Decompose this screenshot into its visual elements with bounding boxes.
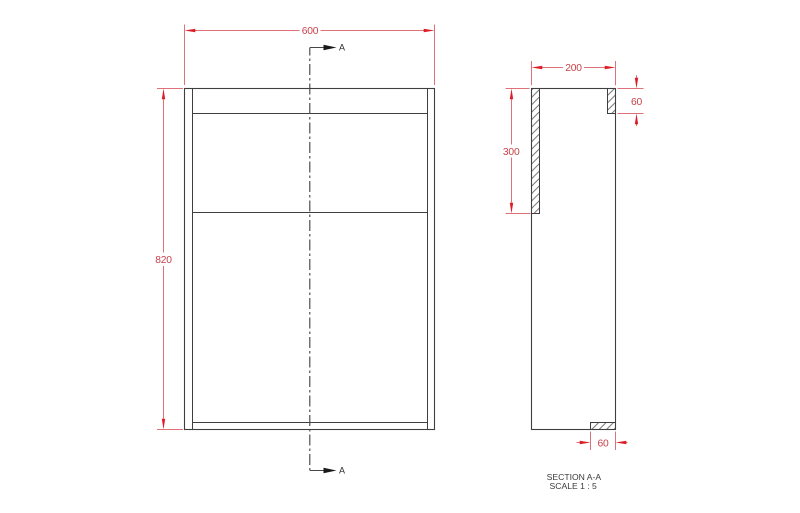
svg-text:60: 60: [631, 97, 643, 108]
svg-text:300: 300: [503, 147, 520, 158]
svg-text:SCALE 1 : 5: SCALE 1 : 5: [550, 481, 598, 491]
svg-text:200: 200: [565, 63, 582, 74]
svg-text:820: 820: [155, 255, 172, 266]
svg-text:60: 60: [597, 438, 609, 449]
svg-text:A: A: [339, 43, 345, 53]
svg-text:A: A: [339, 466, 345, 476]
svg-text:600: 600: [302, 26, 319, 37]
